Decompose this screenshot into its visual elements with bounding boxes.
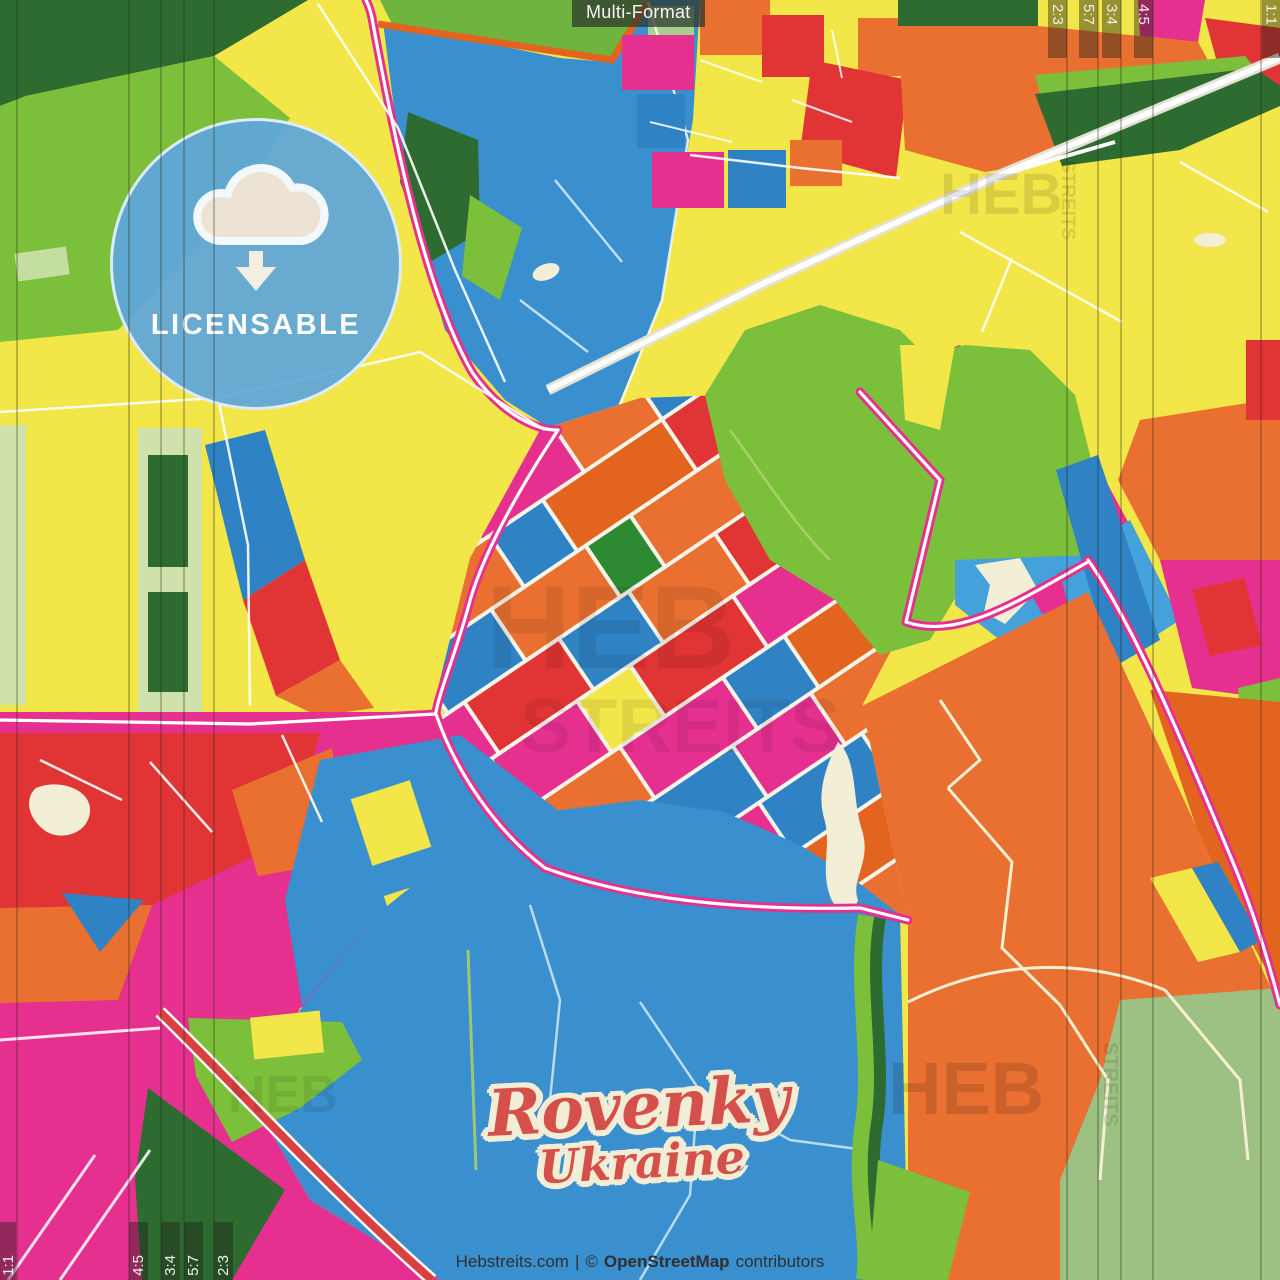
crop-guide-line (128, 0, 130, 1280)
footer-osm: OpenStreetMap (604, 1252, 730, 1271)
crop-guide-line (1066, 0, 1068, 1280)
multi-format-badge: Multi-Format (572, 0, 705, 27)
map-poster: HEB STREITS HEB STREITS HEB STREITS HEB … (0, 0, 1280, 1280)
crop-guide-line (183, 0, 185, 1280)
crop-guide-line (160, 0, 162, 1280)
cloud-download-icon (170, 149, 342, 295)
crop-guide-line (213, 0, 215, 1280)
crop-label-text: 3:4 (1103, 4, 1120, 25)
crop-label-text: 4:5 (1135, 4, 1152, 25)
crop-label-top-2-3: 2:3 (1048, 0, 1067, 58)
crop-label-text: 2:3 (1049, 4, 1066, 25)
footer-contributors: contributors (736, 1252, 825, 1271)
footer-site: Hebstreits.com (456, 1252, 569, 1271)
crop-label-top-5-7: 5:7 (1079, 0, 1098, 58)
attribution-footer: Hebstreits.com|©OpenStreetMapcontributor… (0, 1252, 1280, 1272)
crop-guide-line (16, 0, 18, 1280)
crop-label-top-4-5: 4:5 (1134, 0, 1153, 58)
crop-label-top-1-1: 1:1 (1262, 0, 1280, 58)
crop-label-text: 5:7 (1080, 4, 1097, 25)
footer-separator: | (575, 1252, 579, 1271)
crop-guide-line (1152, 0, 1154, 1280)
watermark-heb-top: HEB (940, 162, 1062, 227)
watermark-heb-center: HEB (486, 562, 735, 694)
crop-label-top-3-4: 3:4 (1102, 0, 1121, 58)
crop-guide-line (1120, 0, 1122, 1280)
crop-label-text: 1:1 (1263, 4, 1280, 25)
licensable-badge: LICENSABLE (110, 118, 402, 410)
crop-guide-line (1260, 0, 1262, 1280)
footer-copyright-symbol: © (585, 1252, 598, 1271)
watermark-streits-center: STREITS (520, 684, 841, 769)
crop-guide-line (1097, 0, 1099, 1280)
